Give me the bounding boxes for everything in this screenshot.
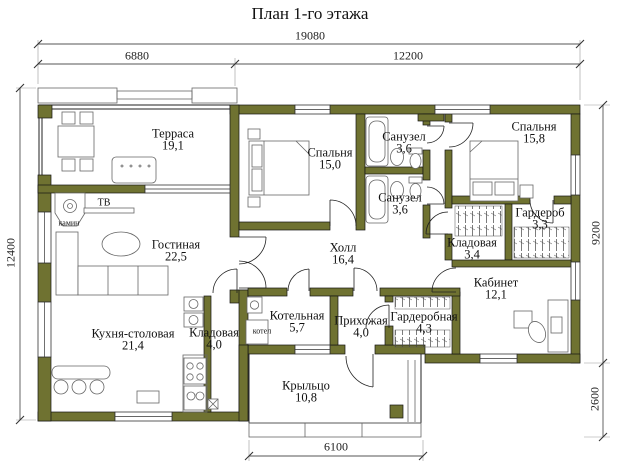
bed	[249, 141, 309, 195]
room-label-bedroom-15-8: Спальня15,8	[511, 122, 556, 145]
bar-table	[137, 391, 159, 403]
toilet-upper	[410, 154, 421, 169]
room-label-entry-hall: Прихожая4,0	[334, 316, 388, 339]
floor-plan-page: План 1-го этажа 19080 6880 12200 12400 9…	[0, 0, 619, 470]
room-label-bathroom-lower: Санузел3,6	[378, 193, 422, 216]
porch-outline	[249, 354, 421, 437]
kitchen-island	[52, 366, 110, 379]
dim-right-upper: 9200	[589, 221, 604, 245]
boiler-label: котел	[253, 327, 271, 336]
bed	[470, 141, 518, 201]
dim-bottom: 6100	[324, 440, 348, 455]
sofa-back	[56, 232, 78, 295]
room-label-porch: Крыльцо10,8	[282, 381, 330, 404]
coffee-table	[102, 232, 140, 256]
boiler-room-equipment	[246, 297, 268, 344]
fireplace-label: камин	[59, 219, 80, 228]
room-label-bedroom-15-0: Спальня15,0	[307, 148, 352, 171]
dim-top-right: 12200	[393, 49, 423, 64]
dim-left: 12400	[4, 238, 19, 268]
kitchen-furniture	[52, 297, 218, 412]
room-label-pantry-4-0: Кладовая4,0	[189, 328, 239, 351]
dim-top-left: 6880	[125, 49, 149, 64]
room-label-bathroom-upper: Санузел3,6	[382, 132, 426, 155]
study-furniture	[514, 300, 568, 352]
tv-label: ТВ	[98, 198, 111, 209]
bedroom-150-furniture	[248, 129, 309, 207]
dim-top-total: 19080	[295, 29, 325, 44]
room-label-pantry-3-4: Кладовая3,4	[447, 238, 497, 261]
stove	[184, 358, 206, 384]
sofa-seats	[78, 266, 168, 295]
page-title: План 1-го этажа	[252, 4, 369, 24]
terrace-furniture	[58, 112, 156, 183]
bedroom-158-furniture	[470, 141, 533, 201]
room-label-terrace: Терраса19,1	[152, 129, 194, 152]
room-label-boiler-room: Котельная5,7	[270, 311, 325, 334]
room-label-living-room: Гостиная22,5	[152, 240, 200, 263]
room-label-dressing-room: Гардеробная4,3	[390, 312, 457, 335]
room-label-study: Кабинет12,1	[474, 278, 518, 301]
room-label-wardrobe-3-3: Гардероб3,3	[515, 208, 564, 231]
room-label-hall: Холл16,4	[330, 243, 357, 266]
tv-stand	[84, 208, 134, 213]
dim-right-lower: 2600	[588, 387, 603, 411]
room-label-kitchen-dining: Кухня-столовая21,4	[92, 329, 175, 352]
